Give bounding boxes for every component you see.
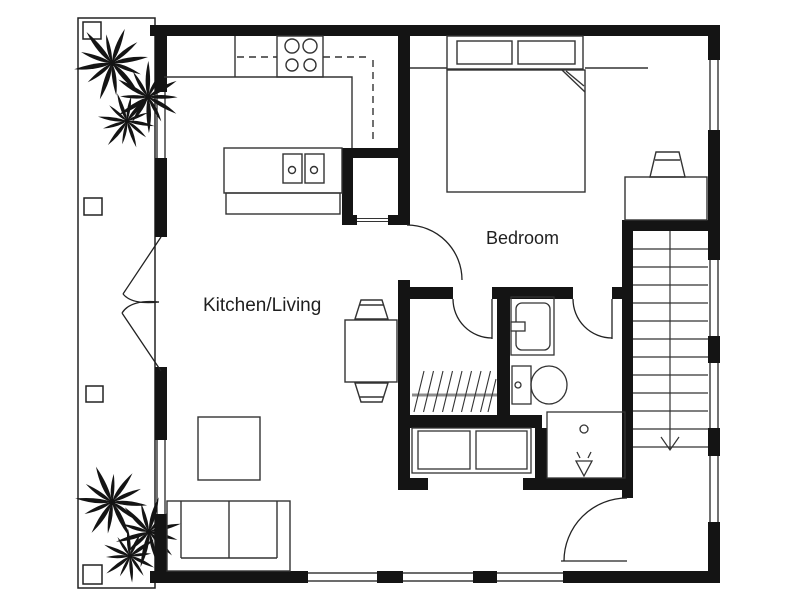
island-sink: [224, 148, 342, 214]
door-swings: [122, 225, 627, 561]
floor-plan-drawing: [0, 0, 800, 600]
bedroom-door-arc: [407, 225, 462, 280]
kitchen-living-label: Kitchen/Living: [203, 296, 321, 315]
toilet: [512, 366, 567, 404]
bathroom-door-arc: [573, 299, 612, 339]
interior-walls: [342, 25, 708, 498]
landing-door-arc: [561, 498, 627, 561]
stairs-down: [633, 231, 708, 450]
sink-vanity: [511, 297, 554, 355]
dining-table: [345, 300, 397, 402]
washer-dryer: [412, 428, 531, 473]
sofa: [167, 501, 290, 571]
stove-burners: [277, 36, 323, 77]
closet-door-arc: [453, 299, 492, 339]
palm-plants-top: [74, 29, 193, 153]
shower: [547, 412, 625, 478]
bedroom-label: Bedroom: [486, 229, 559, 247]
double-bed: [410, 36, 648, 192]
floor-plan: Kitchen/Living Bedroom: [0, 0, 800, 600]
coffee-table: [198, 417, 260, 480]
kitchen-counter: [164, 36, 352, 148]
closet-sliding-door: [357, 219, 388, 222]
desk: [625, 152, 707, 220]
wardrobe-rail: [412, 371, 497, 412]
